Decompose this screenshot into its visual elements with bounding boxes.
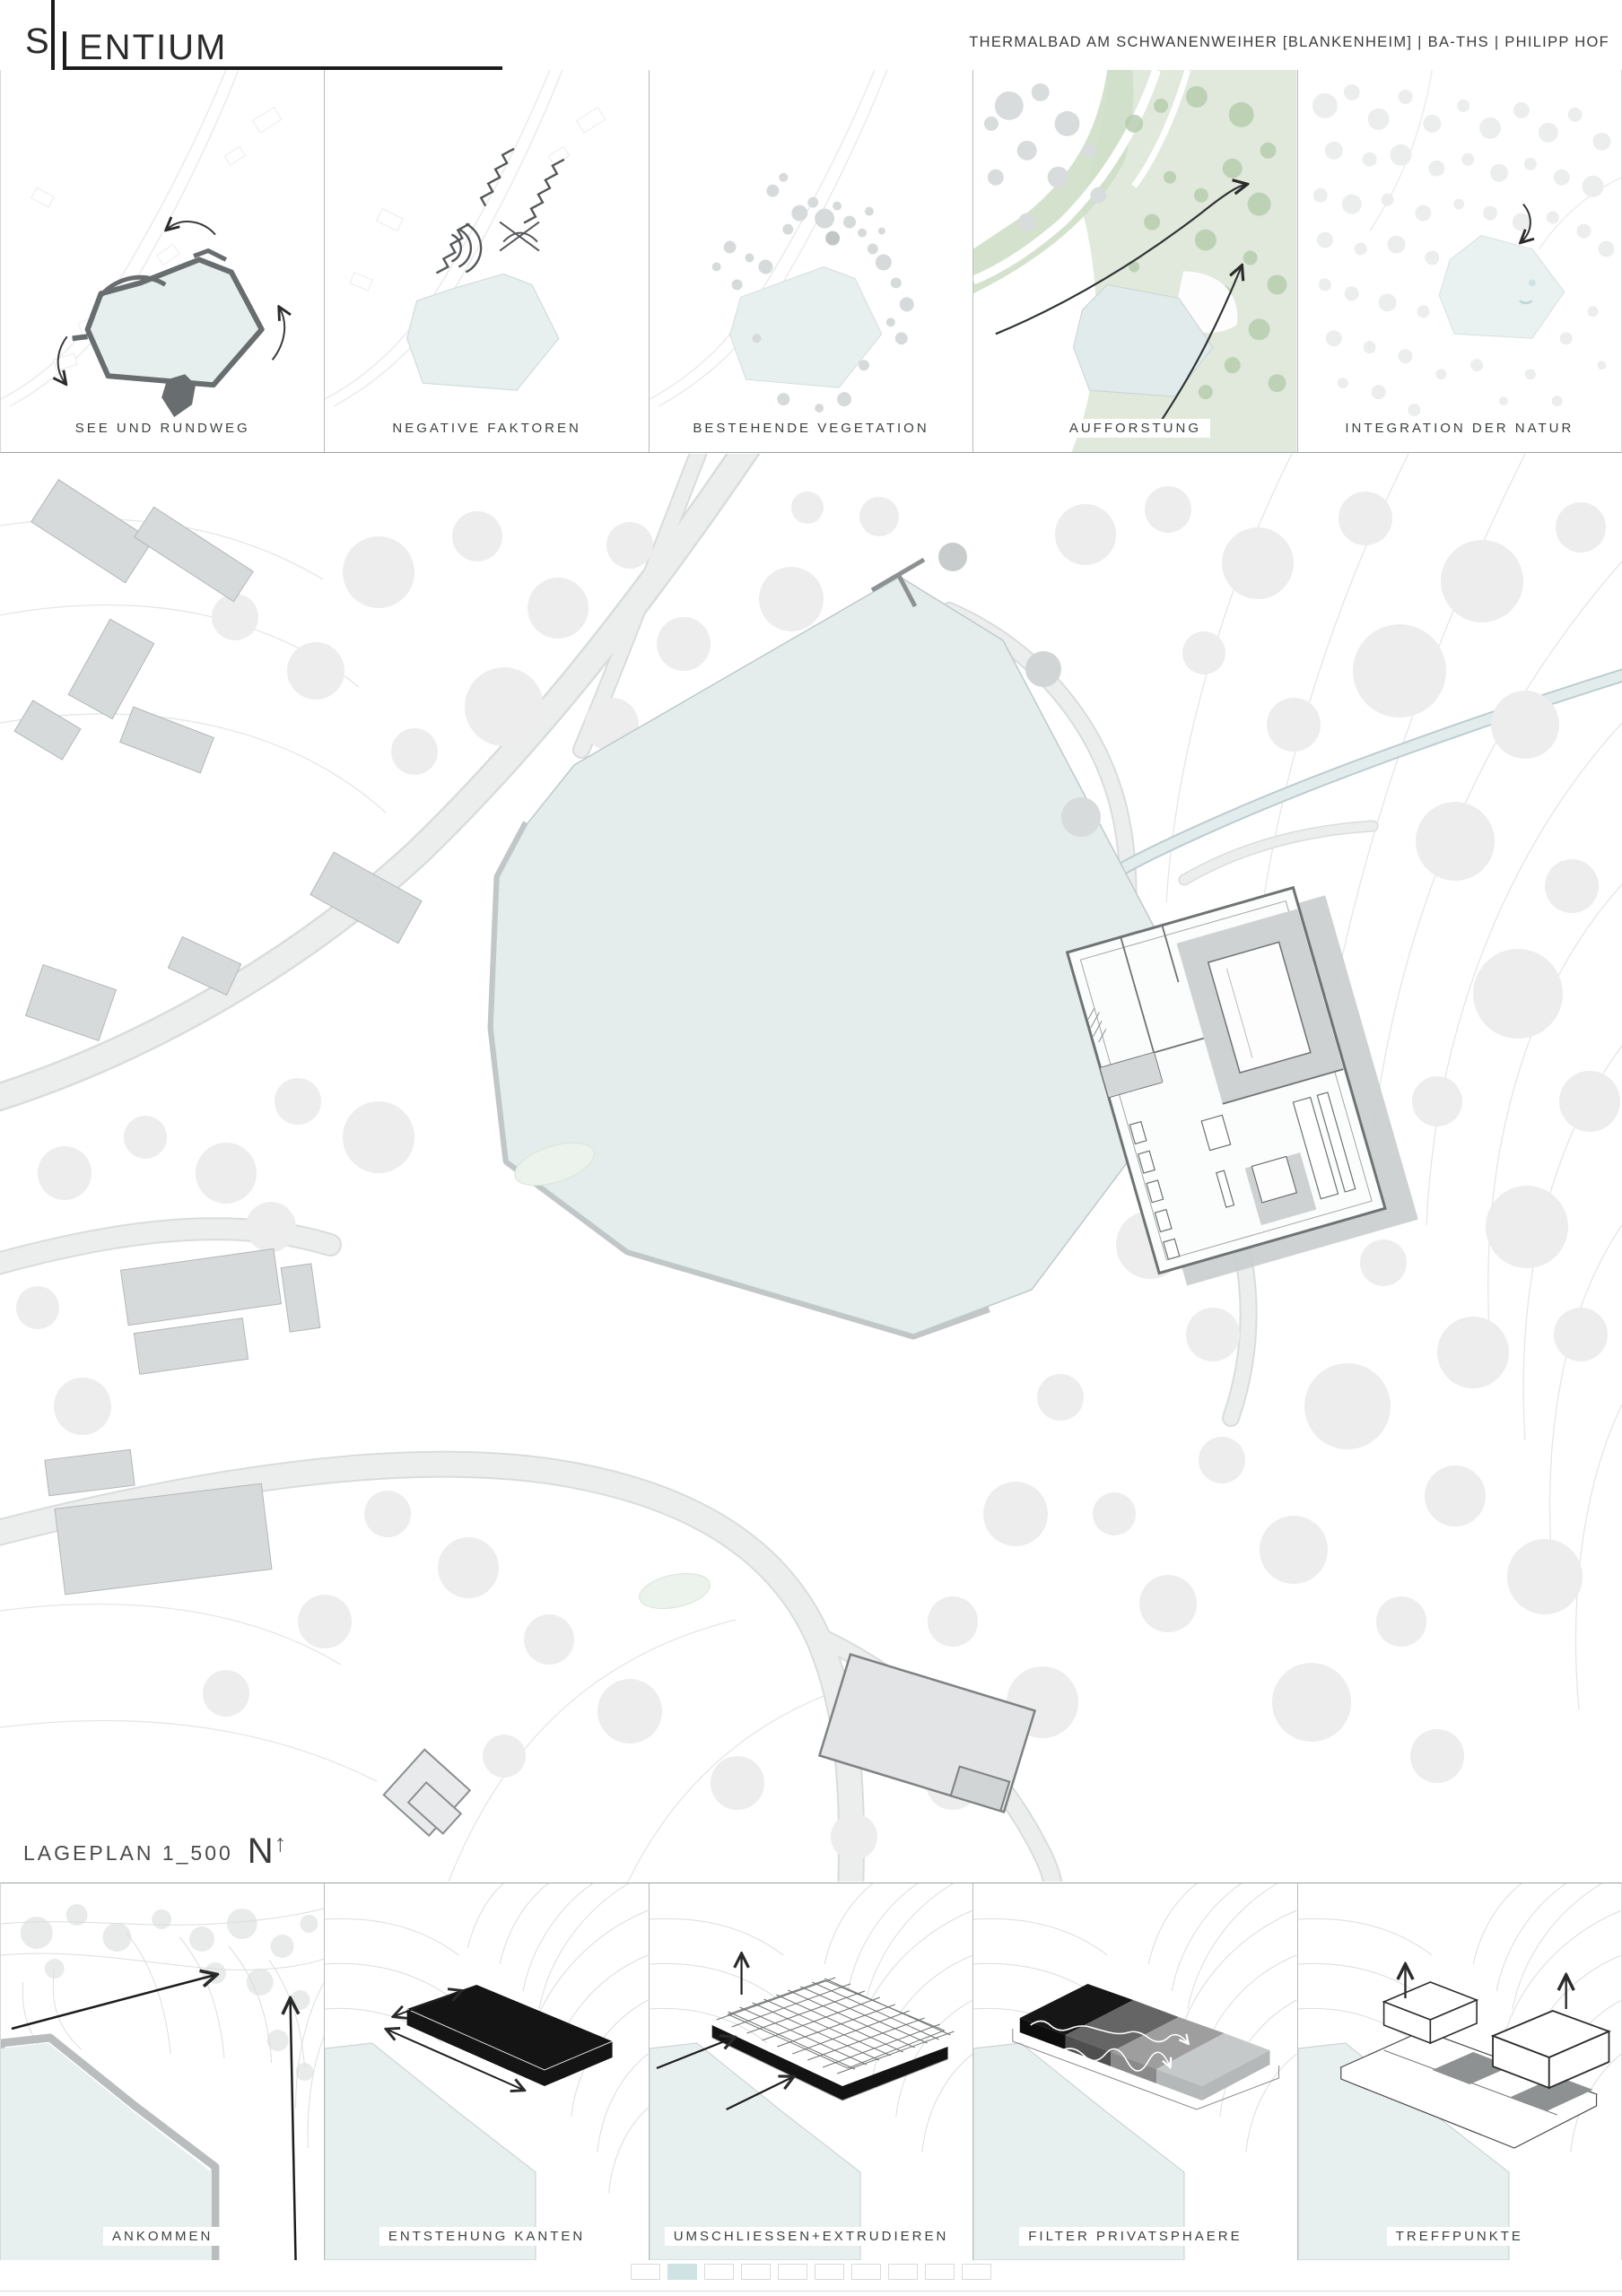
umschliessen-drawing: [650, 1883, 972, 2260]
integration-drawing: [1298, 70, 1621, 452]
presentation-board: S ENTIUM THERMALBAD AM SCHWANENWEIHER [B…: [0, 0, 1622, 2296]
lake-shape: [1, 2043, 212, 2260]
diagram-integration-der-natur: INTEGRATION DER NATUR: [1298, 70, 1621, 452]
page-indicator-3[interactable]: [704, 2264, 734, 2280]
kanten-drawing: [325, 1883, 648, 2260]
page-indicator-1[interactable]: [631, 2264, 660, 2280]
lake-shape: [325, 2043, 536, 2260]
treffpunkte-drawing: [1298, 1883, 1621, 2260]
diagram-entstehung-kanten: ENTSTEHUNG KANTEN: [325, 1883, 649, 2260]
page-indicator-2[interactable]: [667, 2264, 697, 2280]
diagram-umschliessen-extrudieren: UMSCHLIESSEN+EXTRUDIEREN: [650, 1883, 973, 2260]
lake-shape: [407, 274, 559, 390]
header: S ENTIUM THERMALBAD AM SCHWANENWEIHER [B…: [0, 0, 1622, 70]
page-indicator-4[interactable]: [741, 2264, 771, 2280]
massing-diagram-row: ANKOMMEN: [0, 1883, 1622, 2260]
logo-i-bar: [51, 0, 55, 70]
diagram-negative-faktoren: NEGATIVE FAKTOREN: [325, 70, 649, 452]
vegetation-drawing: [650, 70, 972, 452]
sound-waves-icon: [452, 224, 482, 273]
diagram-see-und-rundweg: SEE UND RUNDWEG: [1, 70, 325, 452]
filter-drawing: [973, 1883, 1296, 2260]
logo-letter-s: S: [25, 23, 50, 59]
page-indicator-7[interactable]: [851, 2264, 881, 2280]
footer-rule: [0, 2291, 1622, 2292]
ankommen-drawing: [1, 1883, 324, 2260]
diagram-treffpunkte: TREFFPUNKTE: [1298, 1883, 1621, 2260]
diagram-ankommen: ANKOMMEN: [1, 1883, 325, 2260]
north-arrow-icon: N ↑: [248, 1833, 286, 1869]
diagram-filter-privatsphaere: FILTER PRIVATSPHAERE: [973, 1883, 1297, 2260]
see-rundweg-drawing: [1, 70, 324, 452]
page-indicator-6[interactable]: [815, 2264, 844, 2280]
lake-shape: [729, 266, 881, 387]
page-indicator-10[interactable]: [962, 2264, 991, 2280]
sight-eye-icon: [501, 222, 540, 251]
page-indicator-5[interactable]: [778, 2264, 807, 2280]
negative-faktoren-drawing: [325, 70, 648, 452]
project-info: THERMALBAD AM SCHWANENWEIHER [BLANKENHEI…: [969, 34, 1609, 51]
diagram-aufforstung: AUFFORSTUNG: [973, 70, 1297, 452]
noise-zigzags: [437, 149, 564, 274]
lake-shape: [1439, 236, 1564, 339]
plan-title: LAGEPLAN 1_500: [23, 1841, 233, 1869]
pagination: [0, 2264, 1622, 2280]
site-plan: LAGEPLAN 1_500 N ↑: [0, 454, 1622, 1882]
logo-wordmark: ENTIUM: [63, 31, 502, 70]
plan-caption: LAGEPLAN 1_500 N ↑: [23, 1833, 286, 1869]
aufforstung-drawing: [973, 70, 1296, 452]
page-indicator-8[interactable]: [888, 2264, 918, 2280]
concept-diagram-row: SEE UND RUNDWEG: [0, 70, 1622, 453]
lifted-box-1: [1383, 1982, 1477, 2043]
site-plan-map: [0, 454, 1622, 1882]
page-indicator-9[interactable]: [925, 2264, 955, 2280]
diagram-bestehende-vegetation: BESTEHENDE VEGETATION: [650, 70, 973, 452]
lake-shape: [650, 2043, 860, 2260]
